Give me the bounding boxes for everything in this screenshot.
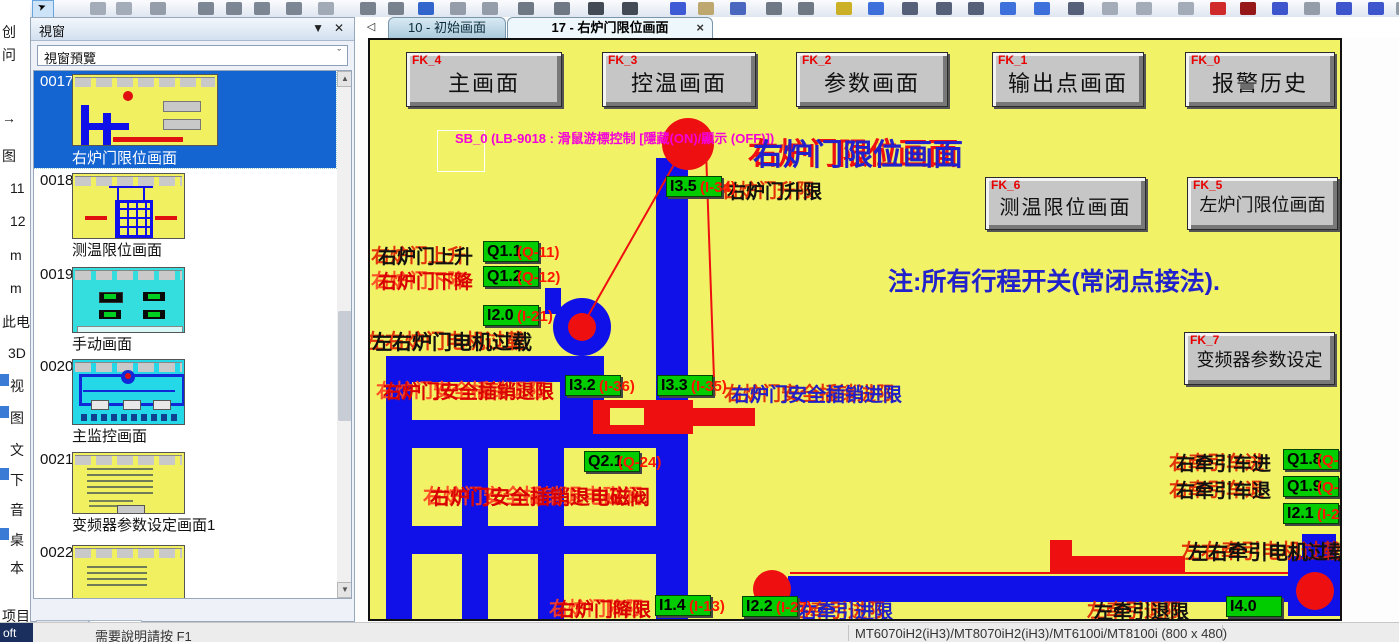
label-text: 右炉门安全插销退电磁阀 [430, 487, 650, 509]
tab-right-door-limit-screen[interactable]: 17 - 右炉门限位画面 × [507, 17, 713, 38]
window-thumbnail [72, 267, 185, 333]
thumb-art [77, 326, 183, 333]
tag-value: I2.1 [1287, 505, 1314, 523]
io-tag-I4_0[interactable]: I4.0 [1226, 596, 1282, 617]
toolbar-icon[interactable] [286, 2, 302, 15]
window-thumbnail [72, 173, 185, 239]
frame-column [538, 420, 564, 621]
tag-pin: (Q-16) [1317, 479, 1342, 496]
thumb-art [163, 119, 201, 130]
thumb-art [104, 312, 116, 317]
edge-text: 图 [2, 146, 16, 166]
preview-mode-select[interactable]: 視窗預覽 ˇ [37, 45, 348, 66]
window-number: 0019 [40, 266, 73, 283]
toolbar-icon[interactable] [554, 2, 570, 15]
toolbar-icon[interactable] [450, 2, 466, 15]
thumb-art [75, 77, 215, 87]
tab-initial-screen[interactable]: 10 - 初始画面 [388, 17, 506, 38]
tag-pin: (I-27) [776, 599, 812, 616]
label-door-down-limit[interactable]: 右炉门降限右炉门降限 [556, 595, 651, 621]
desktop-icon [0, 528, 9, 540]
tag-pin: (Q-12) [517, 269, 560, 286]
io-tag-I2_1[interactable]: I2.1(I-22) [1283, 503, 1339, 524]
window-thumbnail [72, 359, 185, 425]
io-tag-I1_4[interactable]: I1.4(I-13) [655, 595, 711, 616]
list-item-0022[interactable]: 0022 [34, 542, 336, 599]
io-tag-Q1_8[interactable]: Q1.8(Q-15) [1283, 449, 1339, 470]
io-tag-I2_2[interactable]: I2.2(I-27) [742, 596, 798, 617]
frame-column [462, 420, 488, 621]
toolbar-icon[interactable] [198, 2, 214, 15]
thumb-art [113, 137, 183, 142]
toolbar-icon[interactable] [1336, 2, 1352, 15]
fk-label: 变频器参数设定 [1185, 346, 1334, 372]
toolbar-icon[interactable] [936, 2, 952, 15]
window-thumbnail [72, 452, 185, 514]
toolbar-icon[interactable] [150, 2, 166, 15]
label-text: 左右炉门电机过载 [372, 332, 532, 354]
toolbar-icon[interactable] [1102, 2, 1118, 15]
toolbar-icon[interactable] [90, 2, 106, 15]
label-text: 右炉门上升 [378, 247, 473, 268]
background-window-strip: 创 问 → 图 11 12 m m 此电 3D 视 图 文 下 音 桌 本 项目 [0, 0, 30, 622]
io-tag-I3_5[interactable]: I3.5(I-34) [666, 176, 722, 197]
close-panel-icon[interactable]: ✕ [334, 21, 344, 35]
toolbar-icon[interactable] [1304, 2, 1320, 15]
hmi-screen-canvas[interactable]: SB_0 (LB-9018 : 滑鼠游標控制 [隱藏(ON)/顯示 (OFF)]… [368, 38, 1342, 621]
label-traction-forward-limit[interactable]: 右牵引进限右牵引进限 [798, 597, 893, 621]
thumb-art [87, 562, 147, 586]
thumb-art [87, 468, 153, 494]
panel-header: 視窗 ▼ ✕ [31, 18, 354, 41]
fk-tag: FK_2 [802, 53, 831, 67]
edge-text: 文 [10, 440, 24, 460]
io-tag-I3_2[interactable]: I3.2(I-36) [565, 375, 621, 396]
window-number: 0021 [40, 451, 73, 468]
tag-value: I4.0 [1230, 598, 1257, 616]
fk3-temp-control-button[interactable]: FK_3 控温画面 [602, 52, 756, 107]
thumb-art [148, 312, 160, 317]
pictures-icon [0, 406, 9, 418]
fk-label: 左炉门限位画面 [1188, 191, 1337, 217]
io-tag-Q2_1[interactable]: Q2.1(Q-24) [584, 451, 640, 472]
edge-text: 12 [10, 213, 26, 229]
window-title: 测温限位画面 [72, 239, 162, 260]
tab-close-icon[interactable]: × [696, 18, 704, 38]
toolbar-icon[interactable] [588, 2, 604, 15]
fk-tag: FK_7 [1190, 333, 1219, 347]
tab-scroll-left-icon[interactable]: ◁ [363, 19, 379, 36]
list-item-0018[interactable]: 0018 测温限位画面 [34, 170, 336, 262]
label-traction-reverse[interactable]: 右牵引车退右牵引车退 [1176, 476, 1271, 503]
main-toolbar: ➤ [30, 0, 1399, 18]
thumb-art [117, 187, 119, 201]
fk-tag: FK_1 [998, 53, 1027, 67]
safety-pin-notch [610, 408, 644, 425]
thumb-art [75, 455, 182, 465]
tag-value: I2.0 [487, 307, 514, 325]
label-text: 右牵引进限 [798, 602, 893, 621]
list-item-0019[interactable]: 0019 手动画面 [34, 264, 336, 354]
label-text: 右炉门安全插销退限 [383, 382, 554, 403]
io-tag-I2_0[interactable]: I2.0(I-21) [483, 305, 539, 326]
tag-value: I1.4 [659, 597, 686, 615]
label-door-motor-overload[interactable]: 左右炉门电机过载左右炉门电机过载 [372, 326, 532, 355]
edge-text: 视 [10, 376, 24, 396]
list-item-0017[interactable]: 0017 右炉门限位画面 [34, 71, 336, 168]
toolbar-icon[interactable] [798, 2, 814, 15]
fk7-inverter-params-button[interactable]: FK_7 变频器参数设定 [1184, 332, 1335, 385]
taskbar-fragment: oft [0, 623, 33, 642]
collapse-icon[interactable]: ▼ [312, 21, 324, 35]
screen-title-text: 右炉门限位画面 [753, 139, 963, 172]
tag-pin: (I-13) [689, 598, 725, 615]
toolbar-icon[interactable] [226, 2, 242, 15]
toolbar-icon[interactable] [1136, 2, 1152, 15]
fk-tag: FK_4 [412, 53, 441, 67]
tag-pin: (I-21) [517, 308, 553, 325]
toolbar-icon[interactable] [1240, 2, 1256, 15]
tag-pin: (I-36) [599, 378, 635, 395]
fk4-main-screen-button[interactable]: FK_4 主画面 [406, 52, 562, 107]
thumb-art [75, 176, 182, 186]
thumb-art [75, 270, 182, 280]
thumb-art [109, 186, 153, 188]
thumb-art [83, 390, 175, 392]
downloads-icon [0, 468, 9, 480]
thumb-art [123, 400, 141, 410]
thumb-art [81, 414, 177, 421]
io-tag-Q1_9[interactable]: Q1.9(Q-16) [1283, 476, 1339, 497]
toolbar-icon[interactable] [1272, 2, 1288, 15]
toolbar-icon[interactable] [360, 2, 376, 15]
thumb-art [115, 200, 153, 239]
fk0-alarm-history-button[interactable]: FK_0 报警历史 [1185, 52, 1335, 107]
label-safety-pin-solenoid[interactable]: 右炉门安全插销退电磁阀右炉门安全插销退电磁阀 [430, 481, 650, 510]
statusbar-model-text: MT6070iH2(iH3)/MT8070iH2(iH3)/MT6100i/MT… [855, 626, 1227, 641]
thumb-art [155, 216, 177, 220]
toolbar-icon[interactable] [1178, 2, 1194, 15]
edge-text: 下 [10, 470, 24, 490]
tag-pin: (Q-15) [1317, 452, 1342, 469]
rail-wheel-right [1296, 572, 1334, 610]
window-panel: 視窗 ▼ ✕ 視窗預覽 ˇ 0017 [30, 17, 355, 622]
toolbar-icon[interactable] [1000, 2, 1016, 15]
videos-icon [0, 374, 9, 386]
window-number: 0018 [40, 172, 73, 189]
scrollbar-thumb[interactable] [338, 311, 352, 421]
io-tag-Q1_1[interactable]: Q1.1(Q-11) [483, 241, 539, 262]
window-number: 0022 [40, 544, 73, 561]
toolbar-icon[interactable] [254, 2, 270, 15]
wiring-note[interactable]: 注:所有行程开关(常闭点接法). [888, 262, 1220, 298]
frame-cross-bar [386, 526, 688, 554]
edge-text: 3D [8, 345, 26, 361]
window-title: 手动画面 [72, 333, 132, 354]
toolbar-icon[interactable] [766, 2, 782, 15]
fk-label: 报警历史 [1186, 66, 1334, 98]
window-thumbnail [72, 545, 185, 599]
edge-text: 创 [2, 22, 16, 42]
label-text: 右炉门升限 [727, 182, 822, 203]
label-text: 右炉门安全插销进限 [731, 385, 902, 406]
edge-text: → [2, 110, 16, 126]
thumbnail-scrollbar[interactable]: ▲ ▼ [337, 71, 352, 598]
toolbar-icon[interactable] [730, 2, 746, 15]
toolbar-icon[interactable] [1068, 2, 1084, 15]
label-text: 右牵引车进 [1176, 454, 1271, 475]
tag-pin: (I-22) [1317, 506, 1342, 523]
thumb-art [143, 187, 145, 201]
edge-text: 11 [10, 180, 25, 196]
fk2-parameter-button[interactable]: FK_2 参数画面 [796, 52, 948, 107]
edge-text: 桌 [10, 530, 24, 550]
io-tag-Q1_2[interactable]: Q1.2(Q-12) [483, 266, 539, 287]
tag-pin: (I-35) [691, 378, 727, 395]
toolbar-icon[interactable] [518, 2, 534, 15]
pointer-tool-icon[interactable]: ➤ [32, 0, 54, 18]
fk5-left-door-limit-button[interactable]: FK_5 左炉门限位画面 [1187, 177, 1338, 230]
toolbar-icon[interactable] [836, 2, 852, 15]
toolbar-icon[interactable] [868, 2, 884, 15]
fk-label: 主画面 [407, 66, 561, 98]
window-thumbnail-list: 0017 右炉门限位画面 0018 [33, 70, 352, 599]
edge-text: m [10, 280, 22, 296]
editor-workspace: SB_0 (LB-9018 : 滑鼠游標控制 [隱藏(ON)/顯示 (OFF)]… [355, 38, 1399, 622]
label-text: 右炉门降限 [556, 600, 651, 621]
window-thumbnail [72, 74, 218, 146]
thumb-art [104, 294, 116, 299]
tag-pin: (Q-11) [517, 244, 560, 261]
tag-pin: (I-34) [700, 179, 736, 196]
fk1-output-points-button[interactable]: FK_1 输出点画面 [992, 52, 1144, 107]
chevron-down-icon: ˇ [337, 48, 341, 60]
preview-mode-label: 視窗預覽 [44, 48, 96, 67]
thumb-art [153, 400, 171, 410]
window-number: 0020 [40, 358, 73, 375]
rail-wire [790, 572, 1340, 574]
toolbar-icon[interactable] [418, 2, 434, 15]
label-traction-motor-overload[interactable]: 左右牵引电机过载左右牵引电机过载 [1188, 536, 1342, 565]
thumb-art [103, 113, 111, 145]
window-title: 主监控画面 [72, 425, 147, 446]
label-text: 左牵引退限 [1094, 602, 1189, 621]
screen-title[interactable]: 右炉门限位画面 右炉门限位画面 [753, 130, 963, 174]
list-item-0021[interactable]: 0021 变频器参数设定画面1 [34, 449, 336, 539]
toolbar-icon[interactable] [1368, 2, 1384, 15]
thumb-art [163, 101, 201, 112]
thumb-art [85, 216, 107, 220]
fk-tag: FK_0 [1191, 53, 1220, 67]
thumb-art [125, 373, 131, 379]
edge-text: 图 [10, 408, 24, 428]
toolbar-icon[interactable] [670, 2, 686, 15]
window-number: 0017 [40, 73, 73, 90]
window-title: 右炉门限位画面 [72, 147, 177, 168]
tag-value: I2.2 [746, 598, 773, 616]
tag-pin: (Q-24) [618, 454, 661, 471]
edge-text: 音 [10, 500, 24, 520]
door-motor-hub [568, 313, 596, 341]
toolbar-icon[interactable] [622, 2, 638, 15]
fk6-temp-limit-screen-button[interactable]: FK_6 测温限位画面 [985, 177, 1146, 230]
thumb-art [117, 505, 145, 514]
label-traction-reverse-limit[interactable]: 左牵引退限左牵引退限 [1094, 597, 1189, 621]
sb0-object-note[interactable]: SB_0 (LB-9018 : 滑鼠游標控制 [隱藏(ON)/顯示 (OFF)]… [455, 128, 774, 147]
statusbar-divider [848, 625, 849, 641]
edge-text: 问 [2, 45, 16, 65]
thumb-art [91, 400, 109, 410]
tab-label: 17 - 右炉门限位画面 [551, 20, 668, 35]
edge-text: 此电 [2, 312, 30, 332]
thumb-art [148, 294, 160, 299]
label-traction-forward[interactable]: 右牵引车进右牵引车进 [1176, 449, 1271, 476]
fk-tag: FK_6 [991, 178, 1020, 192]
toolbar-icon[interactable] [698, 2, 714, 15]
scroll-down-icon[interactable]: ▼ [337, 582, 352, 598]
toolbar-icon[interactable] [1210, 2, 1226, 15]
edge-text: m [10, 247, 22, 263]
toolbar-icon[interactable] [482, 2, 498, 15]
label-text: 左右牵引电机过载 [1188, 542, 1342, 564]
safety-pin-tongue [693, 408, 755, 426]
label-text: 右牵引车退 [1176, 481, 1271, 502]
io-tag-I3_3[interactable]: I3.3(I-35) [657, 375, 713, 396]
cart-hook-horizontal [1050, 556, 1185, 572]
panel-title: 視窗 [39, 21, 65, 40]
document-tabbar: ◁ 10 - 初始画面 17 - 右炉门限位画面 × [355, 17, 1399, 39]
toolbar-icon[interactable] [902, 2, 918, 15]
tag-value: I3.2 [569, 377, 596, 395]
window-title: 变频器参数设定画面1 [72, 514, 215, 535]
label-door-lower[interactable]: 右炉门下降右炉门下降 [378, 267, 473, 294]
fk-tag: FK_5 [1193, 178, 1222, 192]
fk-label: 输出点画面 [993, 66, 1143, 98]
toolbar-icon[interactable] [116, 2, 132, 15]
fk-tag: FK_3 [608, 53, 637, 67]
toolbar-icon[interactable] [388, 2, 404, 15]
fk-label: 测温限位画面 [986, 191, 1145, 220]
thumb-art [75, 548, 182, 558]
label-text: 右炉门下降 [378, 272, 473, 293]
thumb-art [123, 91, 133, 101]
edge-text: 本 [10, 558, 24, 578]
toolbar-icon[interactable] [968, 2, 984, 15]
application-window: 创 问 → 图 11 12 m m 此电 3D 视 图 文 下 音 桌 本 项目… [0, 0, 1399, 642]
list-item-0020[interactable]: 0020 主监控画面 [34, 356, 336, 446]
fk-label: 控温画面 [603, 66, 755, 98]
scroll-up-icon[interactable]: ▲ [337, 71, 352, 87]
toolbar-icon[interactable] [1034, 2, 1050, 15]
toolbar-icon[interactable] [318, 2, 334, 15]
label-door-raise[interactable]: 右炉门上升右炉门上升 [378, 242, 473, 269]
statusbar-help-text: 需要說明請按 F1 [95, 626, 192, 642]
label-safety-pin-retract-limit[interactable]: 右炉门安全插销退限右炉门安全插销退限 [383, 377, 554, 404]
label-safety-pin-insert-limit[interactable]: 右炉门安全插销进限右炉门安全插销进限 [731, 380, 902, 407]
tag-value: I3.3 [661, 377, 688, 395]
fk-label: 参数画面 [797, 66, 947, 98]
tag-value: I3.5 [670, 178, 697, 196]
label-door-up-limit[interactable]: 右炉门升限右炉门升限 [727, 177, 822, 204]
statusbar-divider [1222, 625, 1223, 641]
status-bar: oft 需要說明請按 F1 MT6070iH2(iH3)/MT8070iH2(i… [0, 622, 1399, 642]
